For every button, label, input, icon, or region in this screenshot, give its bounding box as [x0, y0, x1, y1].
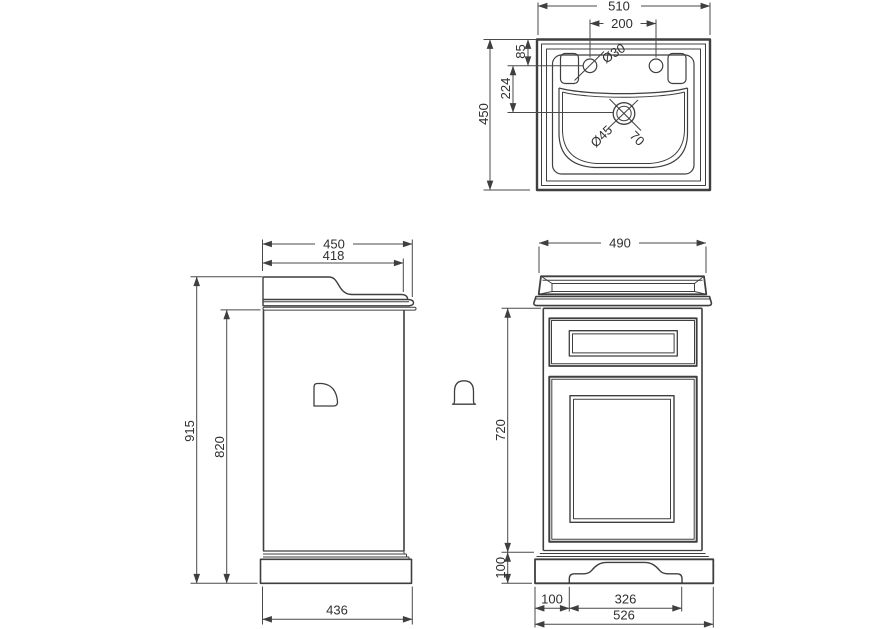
front-plinth-arch: [569, 562, 682, 583]
dim-plan-overall-depth: 450: [476, 103, 491, 125]
dim-front-arch-width: 326: [615, 592, 637, 607]
dim-front-cabinet-height: 720: [493, 419, 508, 441]
dim-side-worktop-depth: 418: [323, 248, 345, 263]
dim-plan-tap-hole-spacing: 200: [611, 16, 633, 31]
dim-side-base-depth: 436: [326, 603, 348, 618]
dim-side-cabinet-height: 820: [212, 436, 227, 458]
door-knob-front: [453, 381, 476, 404]
plan-overflow-slots: [561, 54, 687, 84]
dim-plan-rim-to-holes: 85: [513, 44, 528, 58]
dim-plan-waste-offset: 70: [627, 128, 648, 149]
front-cabinet: [453, 308, 714, 583]
technical-drawing-page: 510 200 450 224 85 Ø30 Ø45 70: [0, 0, 891, 629]
front-door: [549, 377, 696, 542]
door-knob-side: [314, 384, 338, 407]
side-basin-profile: [263, 277, 416, 310]
side-plinth: [261, 559, 412, 583]
dim-plan-overall-width: 510: [608, 0, 630, 14]
dim-front-overall-width: 490: [609, 235, 631, 250]
dim-front-plinth-side-width: 100: [541, 592, 563, 607]
plan-dimensions: 510 200 450 224 85 Ø30 Ø45 70: [476, 0, 710, 190]
plan-view: 510 200 450 224 85 Ø30 Ø45 70: [476, 0, 710, 190]
vanity-unit-technical-drawing: 510 200 450 224 85 Ø30 Ø45 70: [0, 0, 891, 629]
side-cabinet: [261, 310, 412, 583]
front-drawer: [549, 318, 696, 366]
dim-side-overall-height: 915: [182, 420, 197, 442]
dim-plan-waste-diameter: Ø45: [587, 122, 615, 150]
plan-waste-outlet: [608, 99, 641, 131]
dim-plan-holes-to-waste: 224: [498, 78, 513, 100]
front-view: 490 720 100 100 326 526: [453, 235, 714, 627]
front-basin-rim: [534, 276, 712, 305]
dim-front-base-width: 526: [613, 608, 635, 623]
plan-bowl: [559, 88, 688, 168]
side-view: 450 418 915 820 436: [182, 236, 416, 624]
dim-front-plinth-height: 100: [493, 557, 508, 579]
